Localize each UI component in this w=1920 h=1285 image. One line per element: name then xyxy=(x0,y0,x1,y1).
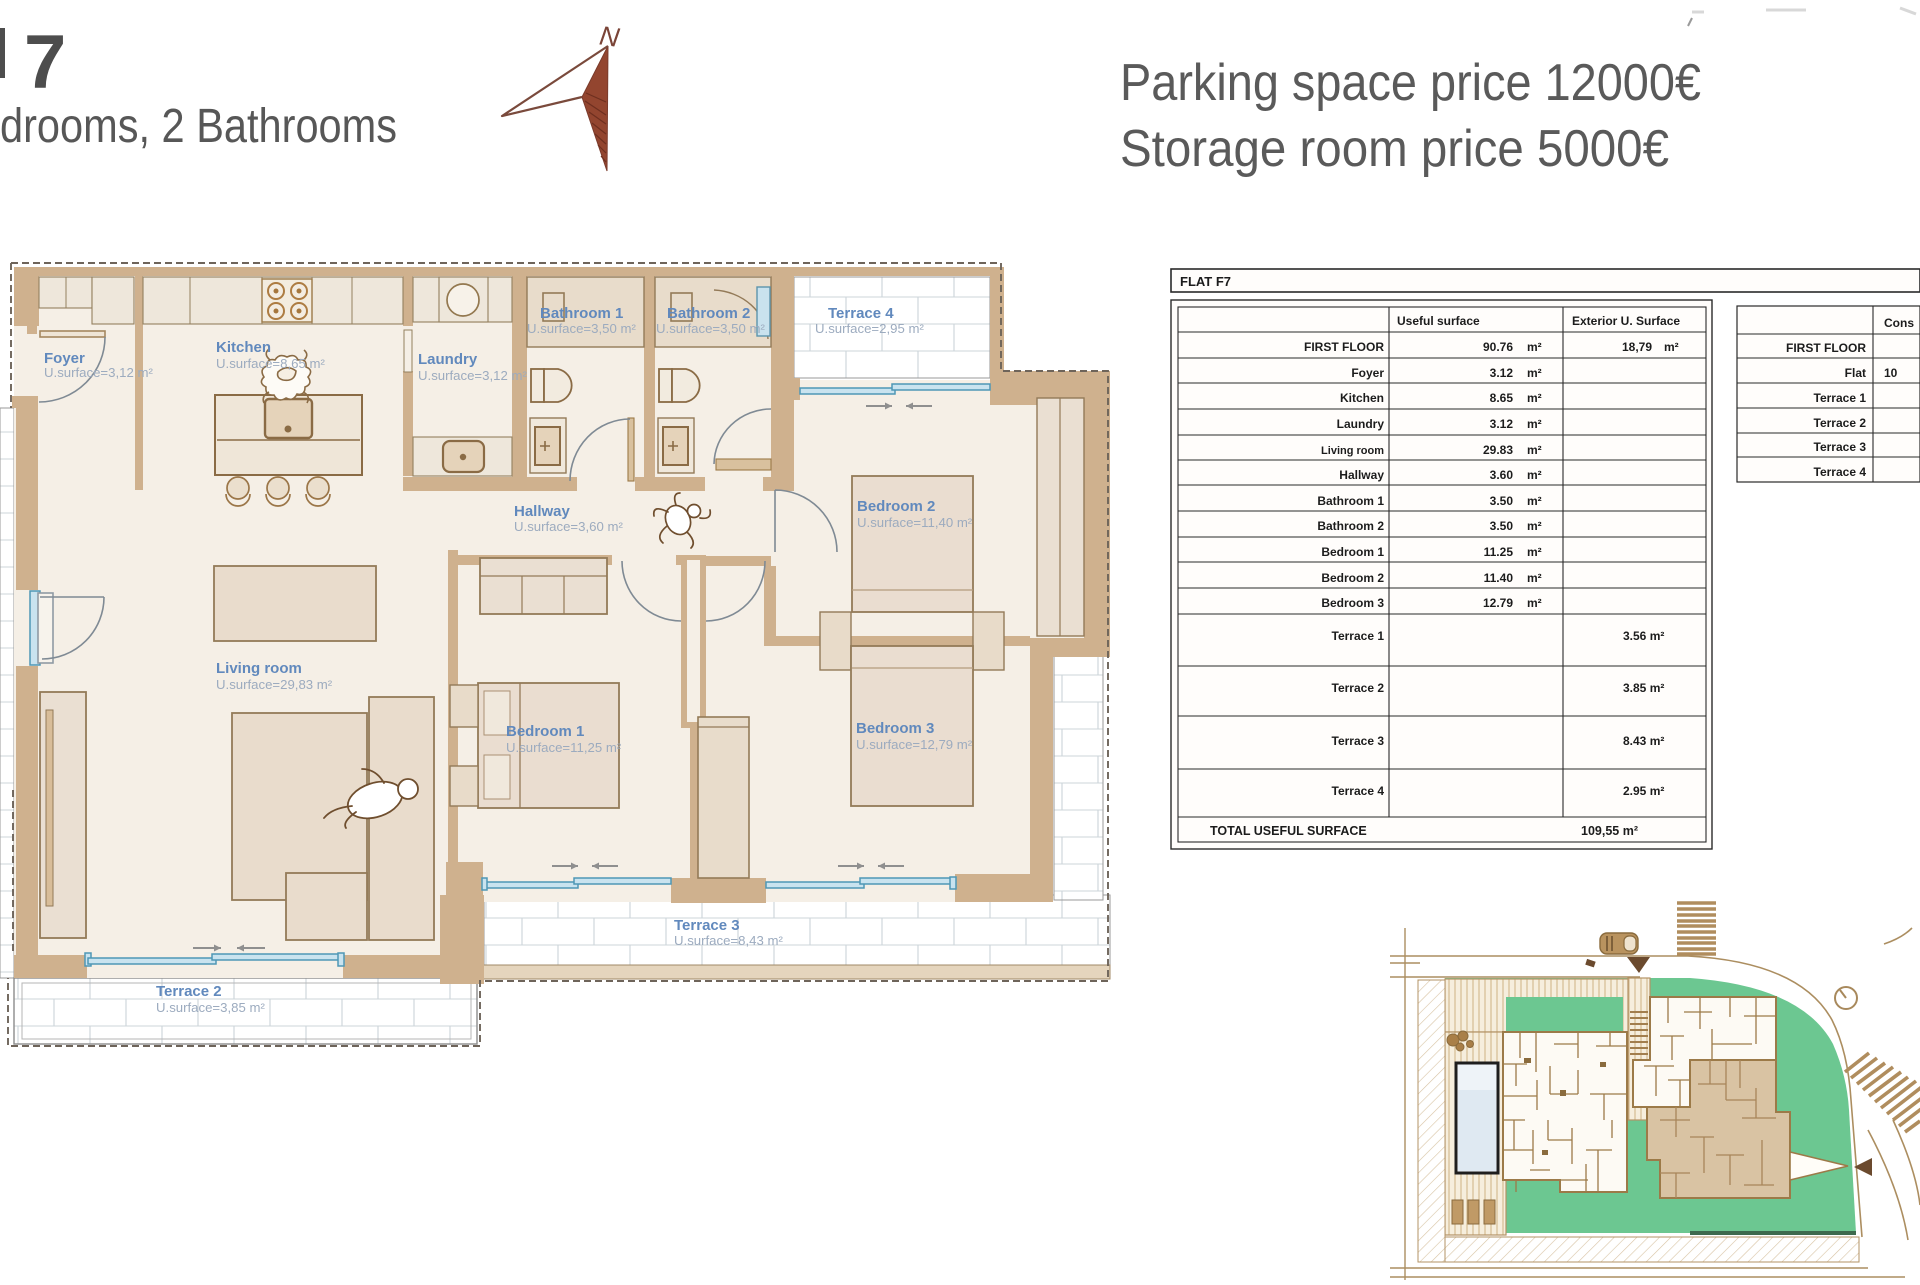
svg-text:Terrace 4: Terrace 4 xyxy=(1814,465,1867,479)
svg-text:2.95 m²: 2.95 m² xyxy=(1623,784,1664,798)
svg-text:Bedroom 3: Bedroom 3 xyxy=(1321,596,1384,610)
svg-text:U.surface=8,65 m²: U.surface=8,65 m² xyxy=(216,356,325,371)
svg-text:FIRST FLOOR: FIRST FLOOR xyxy=(1786,341,1866,355)
svg-text:U.surface=12,79 m²: U.surface=12,79 m² xyxy=(856,737,973,752)
svg-text:3.85 m²: 3.85 m² xyxy=(1623,681,1664,695)
svg-text:3.60: 3.60 xyxy=(1490,468,1514,482)
svg-text:Kitchen: Kitchen xyxy=(1340,391,1384,405)
svg-text:Laundry: Laundry xyxy=(418,351,478,368)
svg-text:12.79: 12.79 xyxy=(1483,596,1513,610)
svg-text:FLAT F7: FLAT F7 xyxy=(1180,274,1231,289)
svg-text:Exterior U. Surface: Exterior U. Surface xyxy=(1572,314,1680,328)
svg-text:U.surface=3,50 m²: U.surface=3,50 m² xyxy=(527,321,636,336)
svg-text:10: 10 xyxy=(1884,366,1898,380)
svg-text:11.40: 11.40 xyxy=(1484,571,1514,585)
svg-text:drooms, 2 Bathrooms: drooms, 2 Bathrooms xyxy=(0,100,397,153)
svg-text:Foyer: Foyer xyxy=(1351,366,1384,380)
svg-text:Living room: Living room xyxy=(216,660,302,677)
svg-text:Terrace 1: Terrace 1 xyxy=(1332,629,1385,643)
svg-text:U.surface=3,50 m²: U.surface=3,50 m² xyxy=(656,321,765,336)
svg-text:Hallway: Hallway xyxy=(514,503,571,520)
svg-text:Terrace 1: Terrace 1 xyxy=(1814,391,1867,405)
svg-text:Living room: Living room xyxy=(1321,445,1384,457)
svg-text:m²: m² xyxy=(1664,340,1679,354)
svg-text:Bathroom 2: Bathroom 2 xyxy=(667,305,750,322)
svg-text:Flat: Flat xyxy=(1845,366,1866,380)
svg-text:8.65: 8.65 xyxy=(1490,391,1514,405)
svg-text:90.76: 90.76 xyxy=(1483,340,1513,354)
svg-text:Kitchen: Kitchen xyxy=(216,339,271,356)
svg-text:Terrace 3: Terrace 3 xyxy=(674,917,740,934)
svg-text:Terrace 3: Terrace 3 xyxy=(1814,440,1867,454)
svg-text:U.surface=11,40 m²: U.surface=11,40 m² xyxy=(857,515,973,530)
svg-text:3.50: 3.50 xyxy=(1490,494,1514,508)
svg-text:18,79: 18,79 xyxy=(1622,340,1652,354)
svg-text:U.surface=3,12 m²: U.surface=3,12 m² xyxy=(44,365,153,380)
svg-text:m²: m² xyxy=(1527,468,1542,482)
svg-text:Terrace 3: Terrace 3 xyxy=(1332,734,1385,748)
svg-text:FIRST FLOOR: FIRST FLOOR xyxy=(1304,340,1384,354)
svg-text:8.43 m²: 8.43 m² xyxy=(1623,734,1664,748)
svg-text:11.25: 11.25 xyxy=(1484,545,1514,559)
svg-text:3.12: 3.12 xyxy=(1490,366,1514,380)
svg-text:Hallway: Hallway xyxy=(1339,468,1384,482)
svg-text:m²: m² xyxy=(1527,443,1542,457)
svg-text:Bedroom 2: Bedroom 2 xyxy=(857,498,935,515)
svg-text:U.surface=8,43 m²: U.surface=8,43 m² xyxy=(674,933,783,948)
svg-text:Storage room price 5000€: Storage room price 5000€ xyxy=(1120,120,1669,178)
svg-text:Terrace 4: Terrace 4 xyxy=(828,305,894,322)
svg-text:Terrace 2: Terrace 2 xyxy=(1814,416,1867,430)
svg-text:m²: m² xyxy=(1527,571,1542,585)
svg-text:m²: m² xyxy=(1527,596,1542,610)
svg-text:Bedroom 3: Bedroom 3 xyxy=(856,720,934,737)
svg-text:Useful surface: Useful surface xyxy=(1397,314,1480,328)
svg-text:Bedroom 1: Bedroom 1 xyxy=(506,723,584,740)
svg-text:Bathroom 1: Bathroom 1 xyxy=(540,305,623,322)
svg-text:U.surface=11,25 m²: U.surface=11,25 m² xyxy=(506,740,622,755)
svg-text:Bathroom 2: Bathroom 2 xyxy=(1317,519,1384,533)
svg-text:3.50: 3.50 xyxy=(1490,519,1514,533)
svg-text:Bathroom 1: Bathroom 1 xyxy=(1317,494,1384,508)
svg-text:U.surface=29,83 m²: U.surface=29,83 m² xyxy=(216,677,333,692)
svg-text:m²: m² xyxy=(1527,366,1542,380)
svg-text:U.surface=3,85 m²: U.surface=3,85 m² xyxy=(156,1000,265,1015)
svg-text:3.56 m²: 3.56 m² xyxy=(1623,629,1664,643)
svg-text:m²: m² xyxy=(1527,391,1542,405)
svg-text:m²: m² xyxy=(1527,494,1542,508)
svg-text:m²: m² xyxy=(1527,340,1542,354)
svg-text:Terrace 2: Terrace 2 xyxy=(156,983,222,1000)
svg-text:m²: m² xyxy=(1527,545,1542,559)
svg-text:TOTAL USEFUL SURFACE: TOTAL USEFUL SURFACE xyxy=(1210,824,1367,838)
svg-text:7: 7 xyxy=(24,20,66,105)
svg-text:Parking space price 12000€: Parking space price 12000€ xyxy=(1120,54,1701,112)
svg-text:m²: m² xyxy=(1527,519,1542,533)
svg-text:U.surface=3,12 m²: U.surface=3,12 m² xyxy=(418,368,527,383)
svg-text:Bedroom 1: Bedroom 1 xyxy=(1321,545,1384,559)
svg-text:U.surface=2,95 m²: U.surface=2,95 m² xyxy=(815,321,924,336)
svg-text:Terrace 2: Terrace 2 xyxy=(1332,681,1385,695)
svg-text:Laundry: Laundry xyxy=(1337,417,1385,431)
svg-text:Terrace 4: Terrace 4 xyxy=(1332,784,1385,798)
svg-text:3.12: 3.12 xyxy=(1490,417,1514,431)
svg-text:m²: m² xyxy=(1527,417,1542,431)
svg-text:109,55 m²: 109,55 m² xyxy=(1581,824,1638,838)
svg-text:U.surface=3,60 m²: U.surface=3,60 m² xyxy=(514,519,623,534)
svg-text:29.83: 29.83 xyxy=(1483,443,1513,457)
svg-text:Cons: Cons xyxy=(1884,316,1914,330)
svg-text:Bedroom 2: Bedroom 2 xyxy=(1321,571,1384,585)
